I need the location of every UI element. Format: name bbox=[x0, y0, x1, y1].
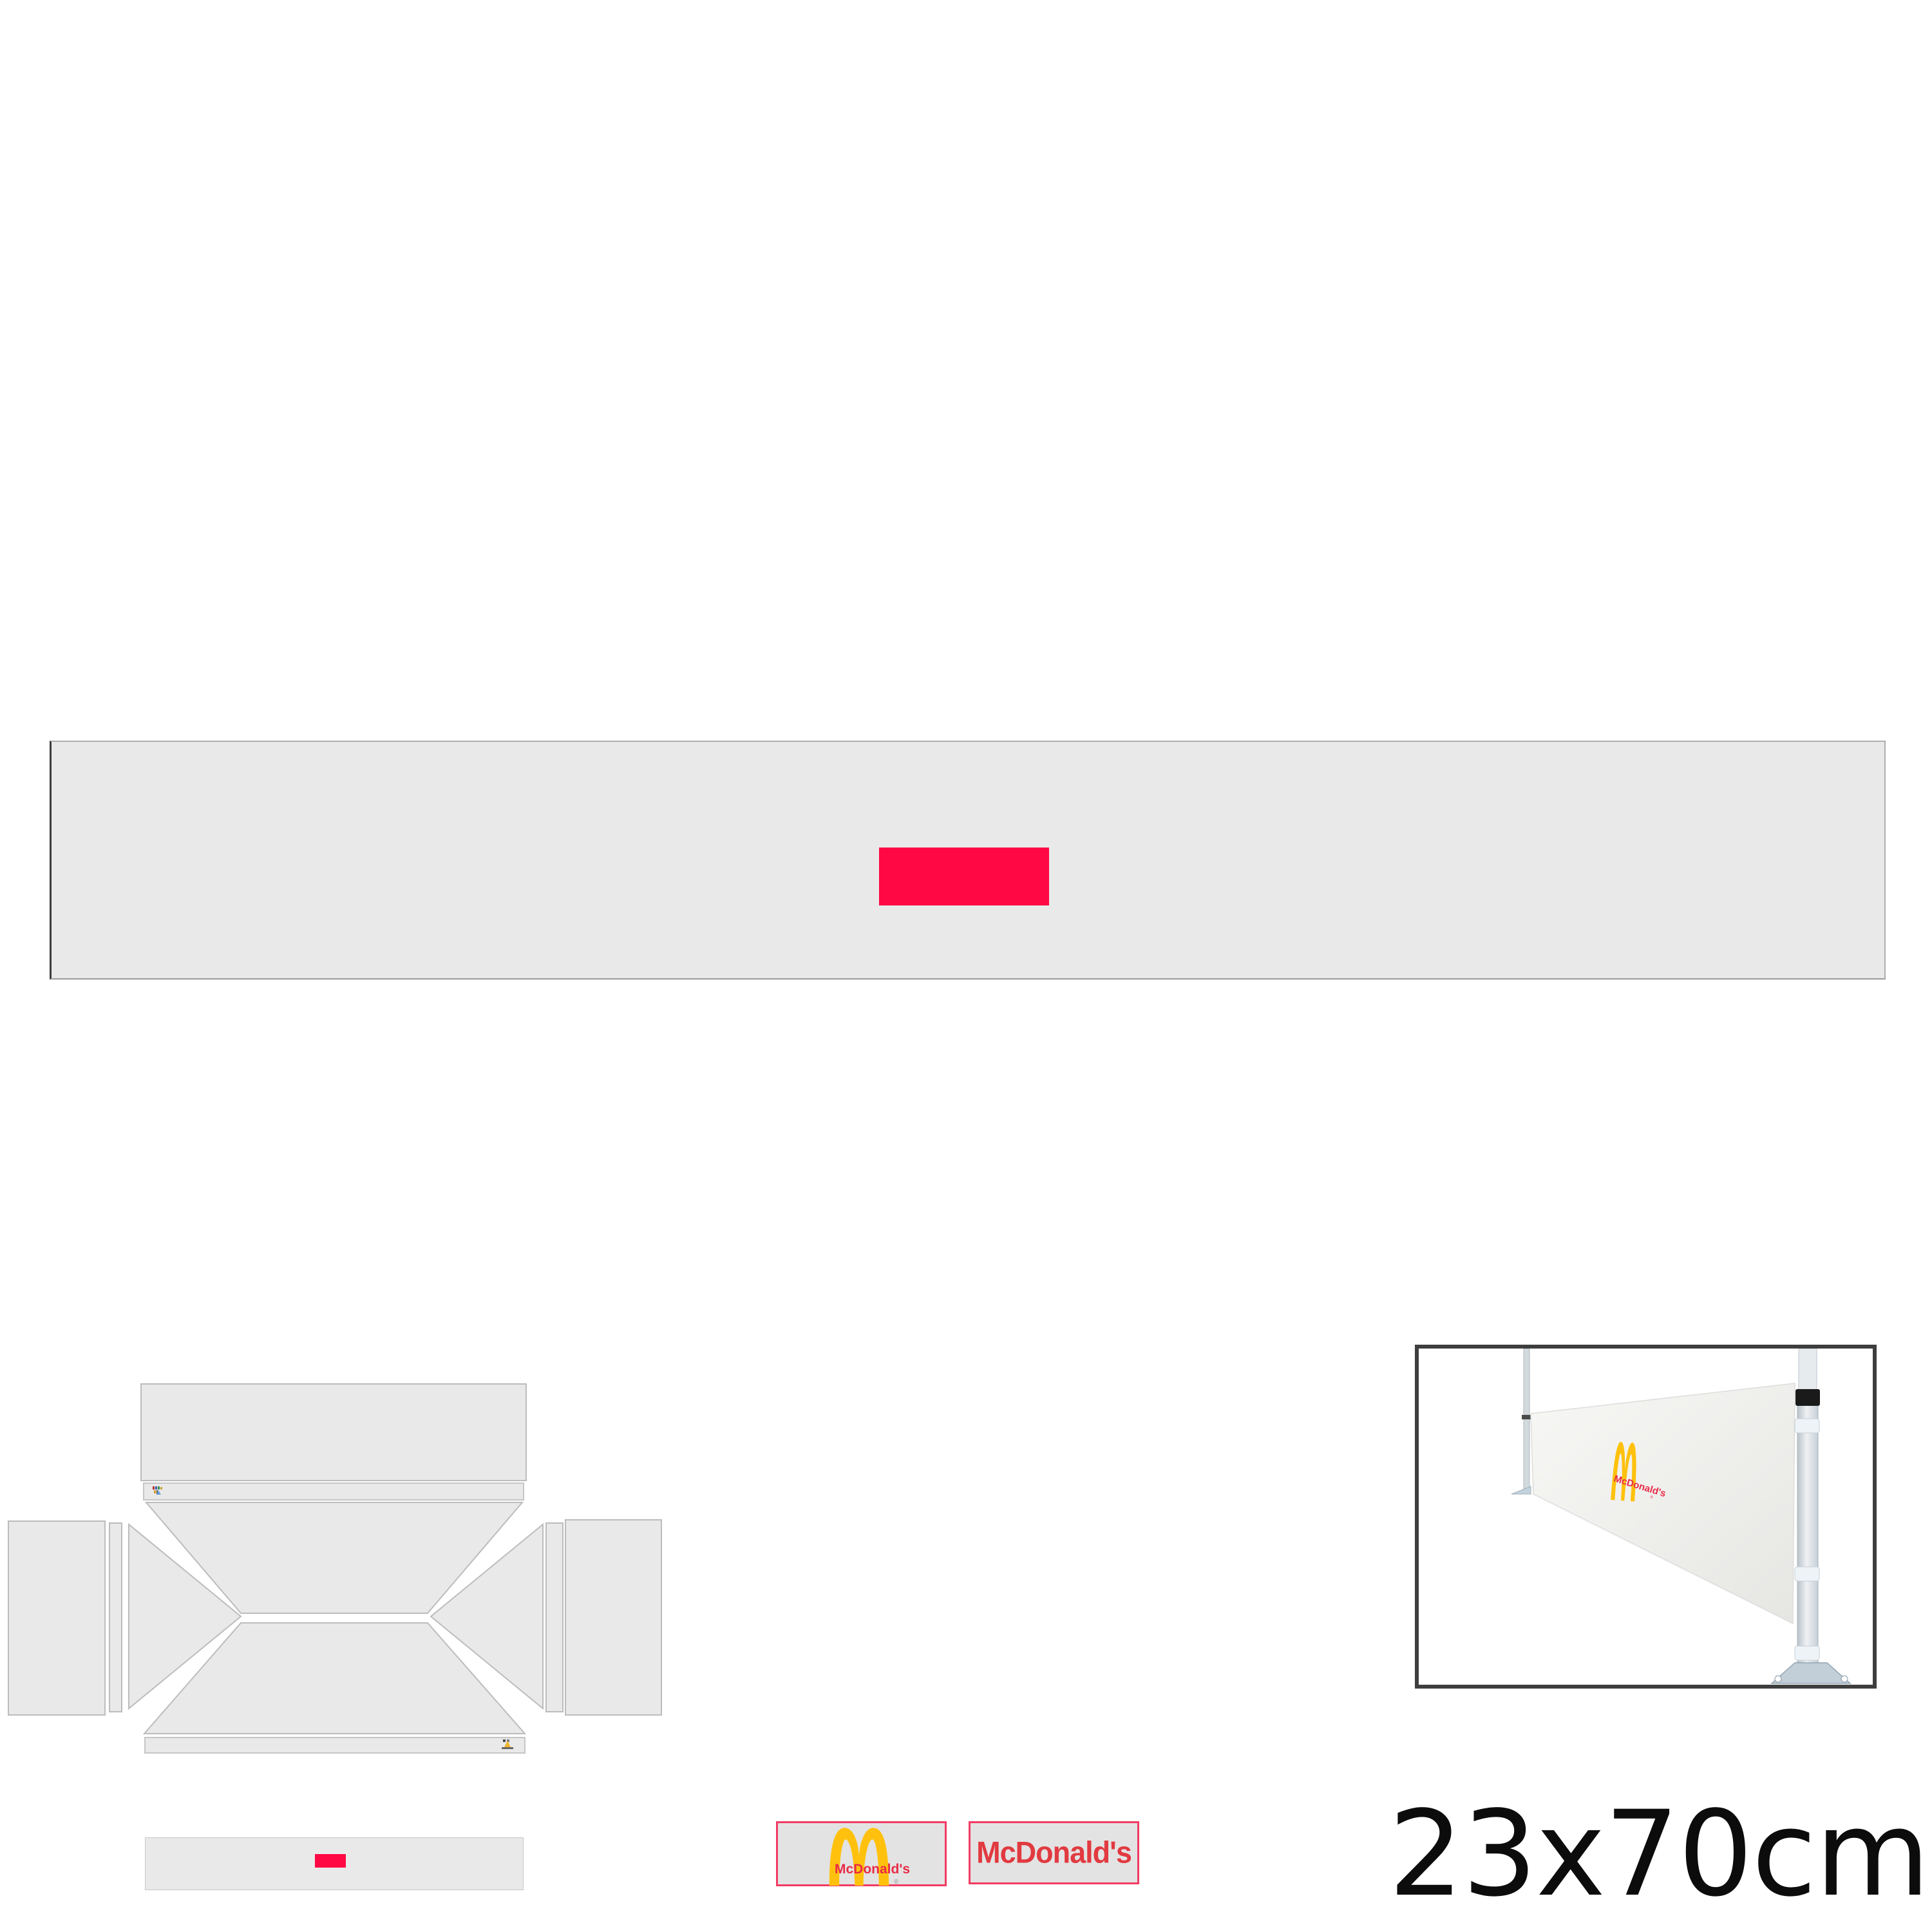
back-wall-panel bbox=[141, 1384, 526, 1481]
tent-layout-diagram bbox=[0, 1378, 683, 1765]
print-area-rect bbox=[879, 848, 1049, 905]
velcro-strap bbox=[1795, 1646, 1819, 1660]
product-photo: McDonald's ® bbox=[1415, 1345, 1877, 1689]
top-valance-strip bbox=[144, 1483, 524, 1500]
base-plate-hole bbox=[1841, 1676, 1848, 1682]
bottom-valance-strip bbox=[145, 1738, 525, 1753]
left-pole-connector bbox=[1522, 1415, 1531, 1419]
right-side-panel bbox=[565, 1520, 661, 1715]
pole-clamp bbox=[1795, 1389, 1820, 1406]
mcdonalds-wordmark: McDonald's bbox=[835, 1862, 910, 1877]
left-tent-pole bbox=[1524, 1349, 1529, 1494]
size-label: 23x70cm bbox=[1362, 1795, 1929, 1913]
right-connector-strip bbox=[546, 1523, 563, 1712]
banner-print-template bbox=[50, 741, 1886, 980]
right-tent-pole bbox=[1797, 1391, 1818, 1674]
left-pole-foot bbox=[1511, 1486, 1531, 1494]
banner-thumbnail bbox=[145, 1837, 524, 1890]
pole-base-plate bbox=[1772, 1663, 1850, 1683]
base-plate-hole bbox=[1775, 1676, 1781, 1682]
mcdonalds-wordmark: McDonald's bbox=[976, 1835, 1132, 1871]
logo-swatch-arches: McDonald's ® bbox=[776, 1821, 947, 1886]
right-pole-upper bbox=[1799, 1349, 1817, 1391]
left-side-panel bbox=[8, 1521, 105, 1715]
logo-swatch-wordmark: McDonald's bbox=[969, 1821, 1139, 1884]
velcro-strap bbox=[1795, 1567, 1819, 1581]
banner-proof-sheet: McDonald's ® McDonald's bbox=[0, 0, 1932, 1932]
registered-mark: ® bbox=[894, 1879, 898, 1886]
half-wall-fabric bbox=[1531, 1383, 1795, 1624]
left-connector-strip bbox=[109, 1523, 122, 1712]
velcro-strap bbox=[1795, 1419, 1819, 1433]
print-area-mini-rect bbox=[315, 1854, 346, 1868]
product-photo-render: McDonald's ® bbox=[1419, 1349, 1873, 1685]
